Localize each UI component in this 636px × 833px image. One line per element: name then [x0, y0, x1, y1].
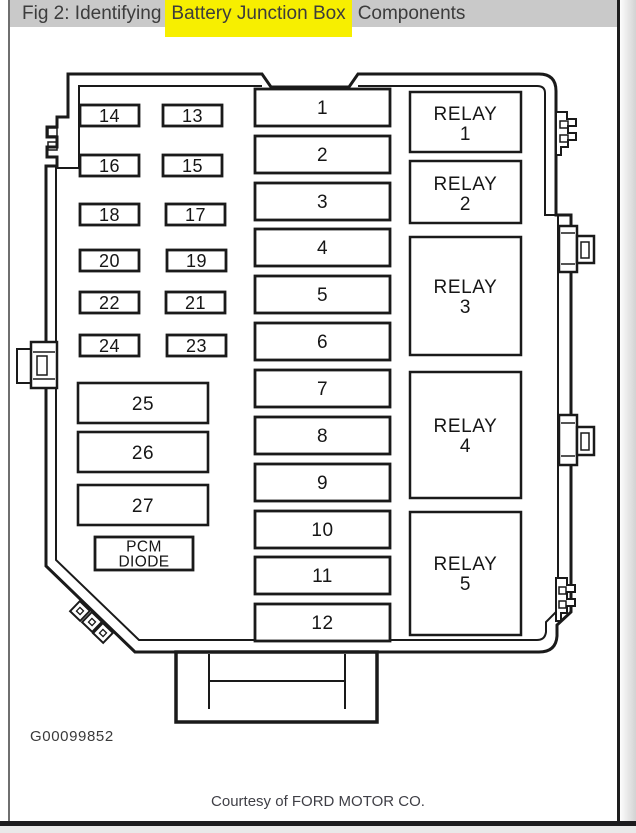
relay-number: 2 — [460, 194, 471, 215]
figure-title-highlight: Battery Junction Box — [165, 0, 351, 37]
fuse-label: 1 — [317, 98, 328, 119]
fuse-8: 8 — [255, 417, 390, 454]
fuse-21: 21 — [166, 292, 225, 313]
fuse-23: 23 — [167, 335, 226, 356]
fuse-label: 17 — [185, 205, 206, 225]
relay-number: 5 — [460, 574, 471, 595]
fuse-6: 6 — [255, 323, 390, 360]
figure-title-prefix: Fig 2: Identifying — [22, 3, 161, 24]
relay-number: 3 — [460, 297, 471, 318]
fuse-label: 20 — [99, 251, 120, 271]
fuse-label: 14 — [99, 106, 120, 126]
fuse-label: 8 — [317, 426, 328, 447]
fuse-26: 26 — [78, 432, 208, 472]
fuse-27: 27 — [78, 485, 208, 525]
relay-label: RELAY — [434, 104, 498, 125]
fuse-label: 19 — [186, 251, 207, 271]
fuse-label: 13 — [182, 106, 203, 126]
fuse-label: 18 — [99, 205, 120, 225]
relay-label: RELAY — [434, 554, 498, 575]
fuse-19: 19 — [167, 250, 226, 271]
fuse-22: 22 — [80, 292, 139, 313]
relay-1: RELAY 1 — [410, 92, 521, 152]
fuse-label: 16 — [99, 156, 120, 176]
fuse-1: 1 — [255, 89, 390, 126]
relay-3: RELAY 3 — [410, 237, 521, 355]
fuse-label: 27 — [132, 496, 154, 517]
right-top-tab — [556, 112, 576, 155]
fuse-11: 11 — [255, 557, 390, 594]
relay-label: RELAY — [434, 277, 498, 298]
fuse-25: 25 — [78, 383, 208, 423]
title-bar: Fig 2: IdentifyingBattery Junction BoxCo… — [10, 0, 617, 27]
fuse-label: 2 — [317, 145, 328, 166]
fuse-label: 7 — [317, 379, 328, 400]
fuse-label: 12 — [311, 613, 333, 634]
fuse-label: 26 — [132, 443, 154, 464]
fuse-label: 10 — [311, 520, 333, 541]
relay-label: RELAY — [434, 416, 498, 437]
relay-number: 4 — [460, 436, 471, 457]
bottom-connector — [176, 652, 377, 722]
fuse-20: 20 — [80, 250, 139, 271]
fuse-15: 15 — [163, 155, 222, 176]
fuse-label: 22 — [99, 293, 120, 313]
fuse-label: 11 — [312, 566, 333, 587]
relay-5: RELAY 5 — [410, 512, 521, 635]
fuse-label: 3 — [317, 192, 328, 213]
fuse-14: 14 — [80, 105, 139, 126]
page: Fig 2: IdentifyingBattery Junction BoxCo… — [0, 0, 636, 833]
fuse-label: 15 — [182, 156, 203, 176]
fuse-label: 24 — [99, 336, 120, 356]
pcm-diode-label-line2: DIODE — [118, 554, 169, 571]
fuse-4: 4 — [255, 229, 390, 266]
relay-2: RELAY 2 — [410, 161, 521, 223]
fuse-label: 23 — [186, 336, 207, 356]
fuse-13: 13 — [163, 105, 222, 126]
credit-line: Courtesy of FORD MOTOR CO. — [0, 793, 636, 810]
fuse-24: 24 — [80, 335, 139, 356]
left-connector — [17, 342, 57, 388]
fuse-label: 6 — [317, 332, 328, 353]
fuse-box-diagram: 14 16 18 20 22 24 13 15 17 19 21 23 25 2… — [0, 0, 636, 760]
figure-title-suffix: Components — [358, 3, 466, 24]
figure-id: G00099852 — [30, 728, 114, 745]
fuse-label: 4 — [317, 238, 328, 259]
relay-4: RELAY 4 — [410, 372, 521, 498]
fuse-7: 7 — [255, 370, 390, 407]
fuse-17: 17 — [166, 204, 225, 225]
fuse-2: 2 — [255, 136, 390, 173]
fuse-18: 18 — [80, 204, 139, 225]
fuse-5: 5 — [255, 276, 390, 313]
pcm-diode: PCM DIODE — [95, 537, 193, 571]
relay-number: 1 — [460, 124, 471, 145]
fuse-label: 9 — [317, 473, 328, 494]
fuse-16: 16 — [80, 155, 139, 176]
right-lower-connector — [559, 415, 594, 465]
fuse-3: 3 — [255, 183, 390, 220]
fuse-12: 12 — [255, 604, 390, 641]
fuse-label: 25 — [132, 394, 154, 415]
fuse-label: 21 — [185, 293, 206, 313]
fuse-9: 9 — [255, 464, 390, 501]
right-middle-connector — [559, 226, 594, 272]
bottom-strip — [0, 826, 636, 833]
fuse-10: 10 — [255, 511, 390, 548]
relay-label: RELAY — [434, 174, 498, 195]
fuse-label: 5 — [317, 285, 328, 306]
